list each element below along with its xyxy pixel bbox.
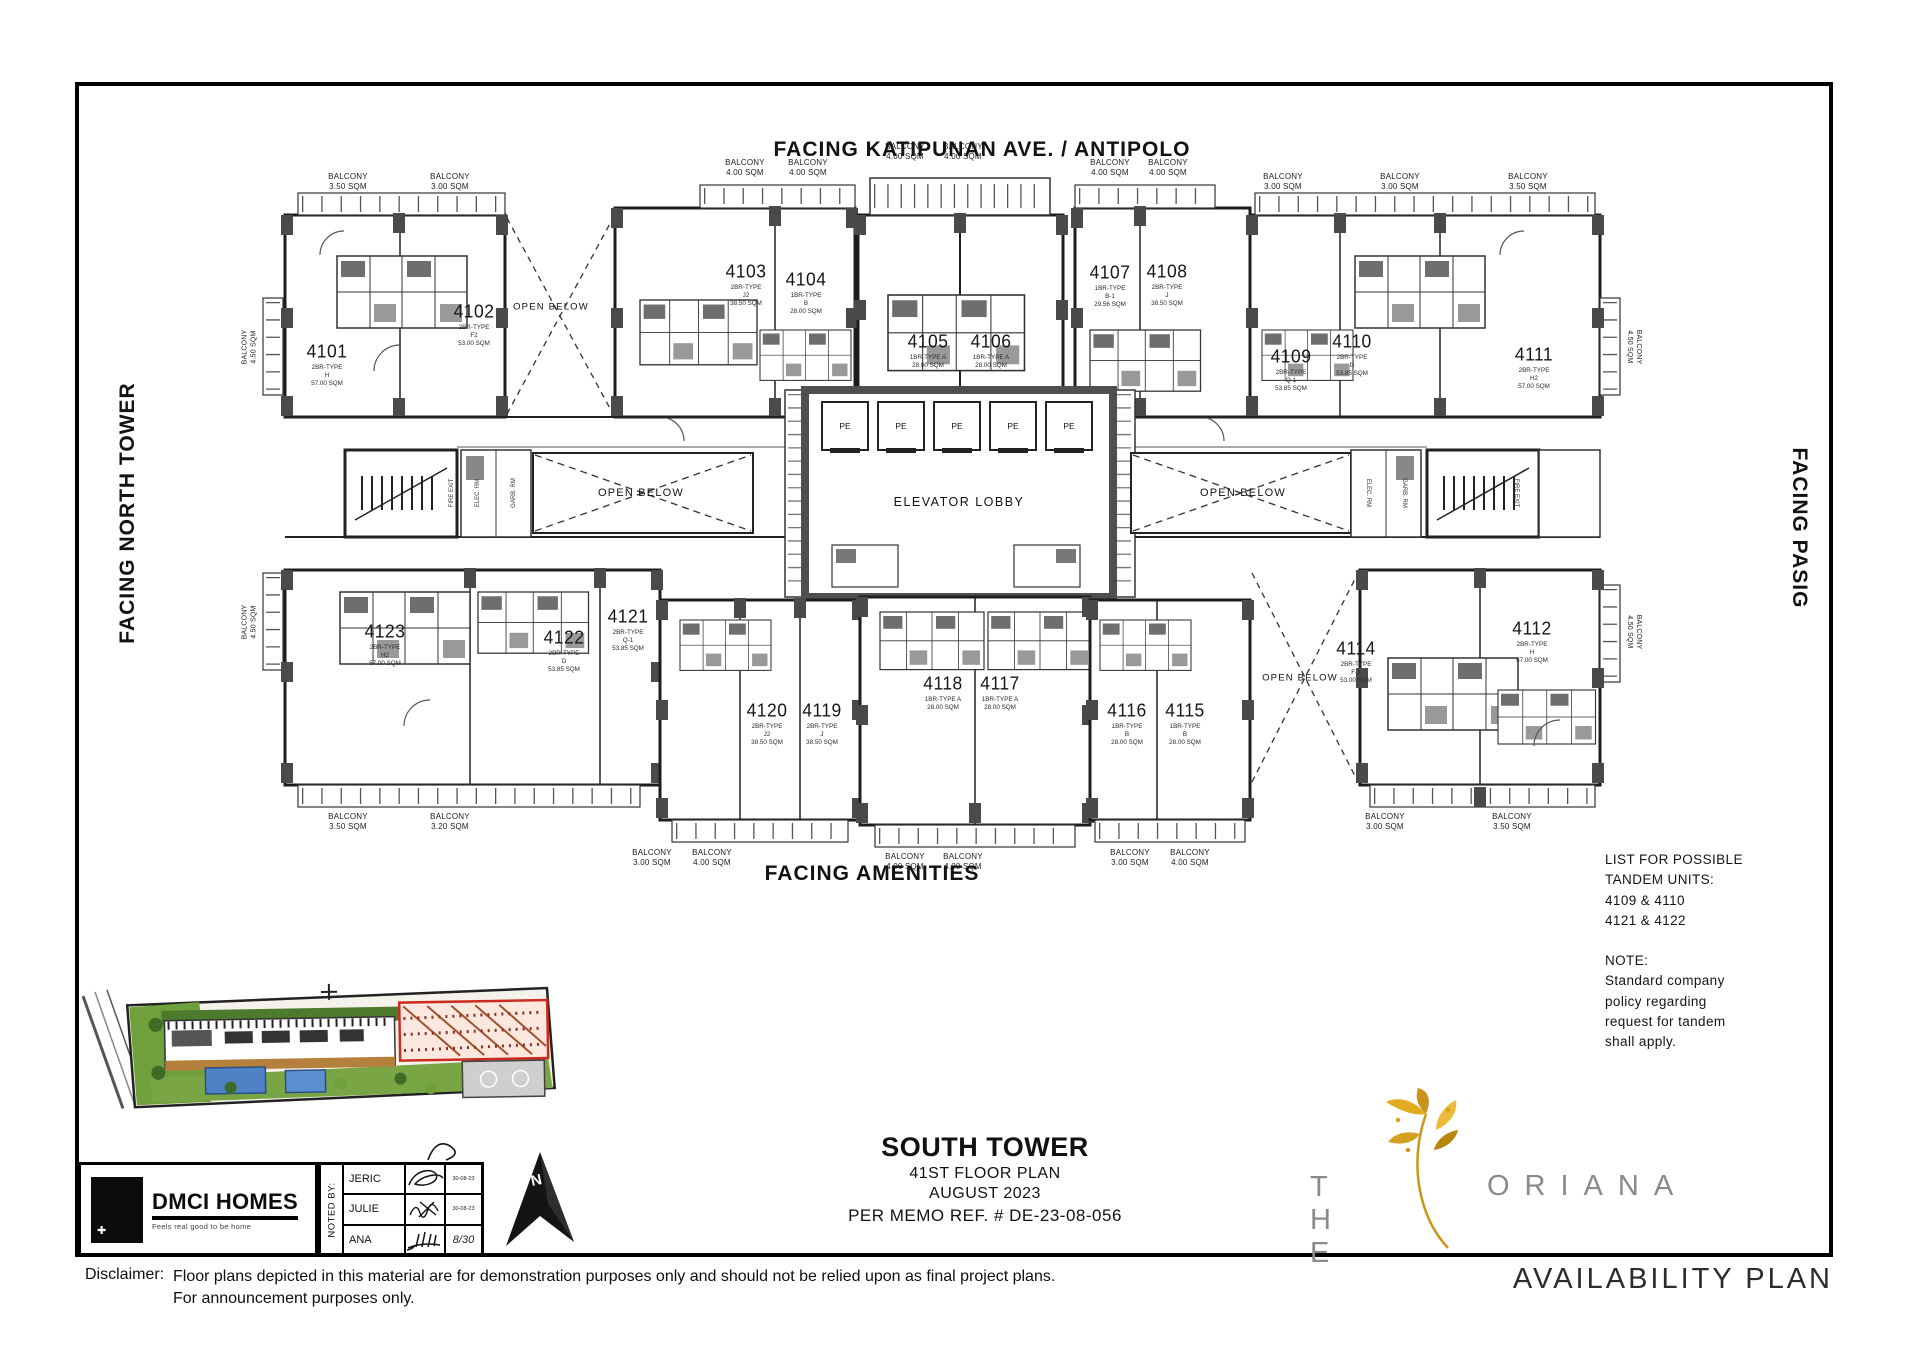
elec-room-label: ELEC. RM (475, 479, 481, 507)
unit-label-4103: 4103 (726, 262, 767, 283)
unit-label-4115: 4115 (1165, 701, 1204, 722)
unit-subtext-4103: 2BR-TYPE J2 38.50 SQM (730, 284, 762, 308)
memo-ref: PER MEMO REF. # DE-23-08-056 (848, 1206, 1122, 1226)
unit-subtext-4110: 2BR-TYPE D 53.85 SQM (1336, 354, 1368, 378)
balcony-label: BALCONY 4.00 SQM (943, 142, 983, 163)
balcony-label: BALCONY 4.00 SQM (788, 158, 828, 179)
unit-label-4105: 4105 (908, 332, 949, 353)
garb-room-label: GARB. RM (1401, 478, 1407, 508)
unit-subtext-4108: 2BR-TYPE J 38.50 SQM (1151, 284, 1183, 308)
balcony-label: BALCONY 4.00 SQM (1170, 848, 1210, 869)
balcony-label: BALCONY 3.00 SQM (430, 172, 470, 193)
oriana-the: T H E (1310, 1171, 1352, 1270)
balcony-label-side: BALCONY 4.50 SQM (241, 605, 259, 640)
balcony-label: BALCONY 4.00 SQM (725, 158, 765, 179)
noted-by-row: ANA 8/30 (344, 1226, 481, 1254)
unit-subtext-4119: 2BR-TYPE J 38.50 SQM (806, 723, 838, 747)
tandem-note-block: LIST FOR POSSIBLE TANDEM UNITS: 4109 & 4… (1605, 850, 1820, 1052)
unit-subtext-4114: 2BR-TYPE F-1 53.00 SQM (1340, 661, 1372, 685)
unit-label-4116: 4116 (1107, 701, 1146, 722)
unit-label-4108: 4108 (1147, 262, 1188, 283)
unit-label-4114: 4114 (1336, 639, 1375, 660)
block-4123-4122-4121 (263, 568, 663, 807)
stairwell-right (1427, 450, 1539, 537)
tandem-pair-1: 4109 & 4110 (1605, 891, 1820, 911)
block-4105-4106 (854, 178, 1068, 390)
balcony-label-side: BALCONY 4.50 SQM (1624, 330, 1642, 365)
unit-subtext-4109: 2BR-TYPE Q-1 53.85 SQM (1275, 369, 1307, 393)
block-4114-4112 (1356, 568, 1620, 807)
noted-name: ANA (344, 1226, 406, 1254)
balcony-label: BALCONY 3.00 SQM (1380, 172, 1420, 193)
open-below-label: OPEN BELOW (513, 302, 589, 313)
balcony-label: BALCONY 3.50 SQM (1492, 812, 1532, 833)
tandem-title: LIST FOR POSSIBLE TANDEM UNITS: (1605, 850, 1820, 891)
unit-label-4117: 4117 (980, 674, 1019, 695)
floor-title: 41ST FLOOR PLAN (848, 1165, 1122, 1183)
stairwell-left (345, 450, 457, 537)
balcony-label: BALCONY 3.20 SQM (430, 812, 470, 833)
unit-subtext-4122: 2BR-TYPE D 53.85 SQM (548, 650, 580, 674)
signature-flourish (428, 1144, 455, 1160)
unit-subtext-4102: 2BR-TYPE F2 53.00 SQM (458, 324, 490, 348)
balcony-label: BALCONY 3.00 SQM (1263, 172, 1303, 193)
balcony-label: BALCONY 4.00 SQM (1090, 158, 1130, 179)
unit-label-4119: 4119 (802, 701, 841, 722)
balcony-label-side: BALCONY 4.50 SQM (241, 330, 259, 365)
unit-subtext-4121: 2BR-TYPE Q-1 53.85 SQM (612, 629, 644, 653)
facing-right-label: FACING PASIG (1787, 448, 1811, 609)
north-arrow-icon (506, 1152, 574, 1246)
balcony-label: BALCONY 3.00 SQM (1110, 848, 1150, 869)
balcony-label: BALCONY 4.00 SQM (1148, 158, 1188, 179)
tandem-pair-2: 4121 & 4122 (1605, 911, 1820, 931)
unit-label-4107: 4107 (1090, 263, 1131, 284)
noted-by-header: NOTED BY: (321, 1165, 344, 1254)
block-4118-4117 (856, 597, 1094, 847)
dmci-tagline: Feels real good to be home (152, 1222, 298, 1231)
noted-date: 8/30 (446, 1226, 481, 1254)
open-below-top-left (507, 218, 613, 414)
balcony-label: BALCONY 4.00 SQM (943, 852, 983, 873)
balcony-label: BALCONY 3.50 SQM (328, 812, 368, 833)
unit-subtext-4105: 1BR-TYPE A 28.00 SQM (910, 354, 946, 370)
elevator-car-label: PE (1063, 421, 1074, 431)
unit-subtext-4101: 2BR-TYPE H 57.00 SQM (311, 364, 343, 388)
dmci-house-icon: ✚ (91, 1177, 143, 1243)
fire-exit-label: FIRE EXIT (1513, 479, 1519, 508)
unit-label-4118: 4118 (923, 674, 962, 695)
balcony-label: BALCONY 4.00 SQM (885, 142, 925, 163)
unit-label-4112: 4112 (1512, 619, 1551, 640)
unit-label-4121: 4121 (608, 607, 649, 628)
unit-label-4120: 4120 (747, 701, 788, 722)
elevator-car-label: PE (839, 421, 850, 431)
balcony-label: BALCONY 3.00 SQM (632, 848, 672, 869)
unit-subtext-4111: 2BR-TYPE H2 57.00 SQM (1518, 367, 1550, 391)
disclaimer-text: Floor plans depicted in this material ar… (173, 1266, 1093, 1309)
open-below-label: OPEN BELOW (1200, 487, 1286, 499)
open-below-label: OPEN BELOW (598, 487, 684, 499)
unit-subtext-4107: 1BR-TYPE B-1 29.56 SQM (1094, 285, 1126, 309)
signature (406, 1195, 446, 1223)
unit-subtext-4123: 2BR-TYPE H2 57.00 SQM (369, 644, 401, 668)
noted-by-row: JULIE 30-08-23 (344, 1195, 481, 1225)
unit-subtext-4120: 2BR-TYPE J2 38.50 SQM (751, 723, 783, 747)
unit-subtext-4106: 1BR-TYPE A 28.00 SQM (973, 354, 1009, 370)
unit-label-4102: 4102 (454, 302, 495, 323)
noted-date: 30-08-23 (446, 1165, 481, 1193)
unit-label-4123: 4123 (365, 622, 406, 643)
balcony-label: BALCONY 4.00 SQM (692, 848, 732, 869)
unit-label-4104: 4104 (786, 270, 827, 291)
disclaimer-label: Disclaimer: (85, 1266, 164, 1284)
garb-room-label: GARB. RM (511, 478, 517, 508)
balcony-label: BALCONY 3.50 SQM (328, 172, 368, 193)
facing-left-label: FACING NORTH TOWER (116, 382, 140, 643)
signature (406, 1226, 446, 1254)
open-below-label: OPEN BELOW (1262, 673, 1338, 684)
oriana-branch-icon (1386, 1088, 1458, 1248)
fire-exit-label: FIRE EXIT (449, 479, 455, 508)
balcony-label: BALCONY 3.00 SQM (1365, 812, 1405, 833)
noted-by-table: NOTED BY: JERIC 30-08-23 JULIE 30-08-23 … (318, 1162, 484, 1257)
unit-label-4109: 4109 (1271, 347, 1312, 368)
unit-label-4101: 4101 (307, 342, 348, 363)
unit-label-4106: 4106 (971, 332, 1012, 353)
availability-plan-label: AVAILABILITY PLAN (1513, 1263, 1833, 1296)
unit-label-4122: 4122 (544, 628, 585, 649)
elevator-car-label: PE (951, 421, 962, 431)
title-block: SOUTH TOWER 41ST FLOOR PLAN AUGUST 2023 … (848, 1132, 1122, 1226)
unit-subtext-4115: 1BR-TYPE B 28.00 SQM (1169, 723, 1201, 747)
date-title: AUGUST 2023 (848, 1185, 1122, 1203)
unit-subtext-4118: 1BR-TYPE A 28.00 SQM (925, 696, 961, 712)
unit-subtext-4116: 1BR-TYPE B 28.00 SQM (1111, 723, 1143, 747)
elec-room-label: ELEC. RM (1365, 479, 1371, 507)
unit-subtext-4117: 1BR-TYPE A 28.00 SQM (982, 696, 1018, 712)
tandem-note: NOTE: Standard company policy regarding … (1605, 951, 1820, 1052)
noted-name: JERIC (344, 1165, 406, 1193)
tower-title: SOUTH TOWER (848, 1132, 1122, 1163)
elevator-car-label: PE (1007, 421, 1018, 431)
elevator-lobby-label: ELEVATOR LOBBY (894, 495, 1025, 509)
unit-subtext-4112: 2BR-TYPE H 57.00 SQM (1516, 641, 1548, 665)
dmci-logo: ✚ DMCI HOMES Feels real good to be home (78, 1162, 318, 1257)
noted-date: 30-08-23 (446, 1195, 481, 1223)
unit-label-4111: 4111 (1515, 345, 1553, 366)
oriana-name: ORIANA (1487, 1170, 1688, 1203)
balcony-label: BALCONY 3.50 SQM (1508, 172, 1548, 193)
key-plan (83, 980, 555, 1109)
unit-subtext-4104: 1BR-TYPE B 28.00 SQM (790, 292, 822, 316)
noted-by-row: JERIC 30-08-23 (344, 1165, 481, 1195)
dmci-wordmark: DMCI HOMES (152, 1189, 298, 1220)
balcony-label: BALCONY 4.00 SQM (885, 852, 925, 873)
noted-name: JULIE (344, 1195, 406, 1223)
balcony-label-side: BALCONY 4.50 SQM (1624, 615, 1642, 650)
availability-plan-sheet: FACING KATIPUNAN AVE. / ANTIPOLO FACING … (0, 0, 1920, 1358)
signature (406, 1165, 446, 1193)
unit-label-4110: 4110 (1332, 332, 1371, 353)
elevator-car-label: PE (895, 421, 906, 431)
